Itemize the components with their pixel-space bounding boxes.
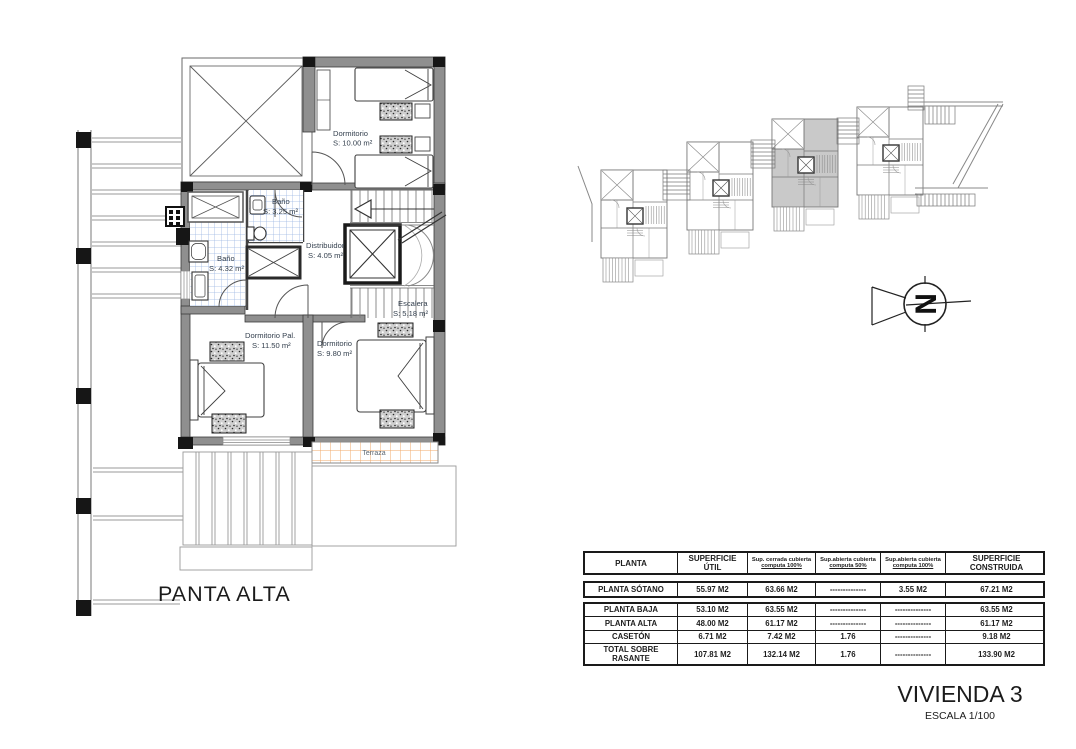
room-area-distribuidor: S: 4.05 m² [308, 251, 343, 260]
cell: -------------- [815, 583, 880, 596]
cell: 6.71 M2 [677, 631, 747, 644]
cell: -------------- [880, 617, 945, 630]
elevator [345, 225, 400, 283]
cell: 63.55 M2 [945, 604, 1047, 617]
sheet-scale: ESCALA 1/100 [880, 710, 1040, 722]
room-label-terraza: Terraza [362, 450, 385, 457]
room-area-dormitorio-pal: S: 11.50 m² [252, 341, 291, 350]
sheet-title: VIVIENDA 3 [880, 681, 1040, 708]
cell: 132.14 M2 [747, 644, 815, 664]
wardrobe-box [188, 192, 243, 222]
north-arrow-icon: N [872, 276, 971, 332]
room-area-dormitorio-br: S: 9.80 m² [317, 349, 352, 358]
cell: 9.18 M2 [945, 631, 1047, 644]
header-line2: computa 50% [829, 563, 866, 570]
cell: 107.81 M2 [677, 644, 747, 664]
pergola-left [78, 130, 183, 616]
lower-outlines [180, 452, 456, 570]
room-label-bano-large: Baño [217, 254, 235, 263]
cell: TOTAL SOBRE RASANTE [585, 644, 677, 664]
areas-table: PLANTA SUPERFICIE ÚTIL Sup. cerrada cubi… [583, 551, 1045, 666]
cell: 3.55 M2 [880, 583, 945, 596]
room-label-dormitorio-br: Dormitorio [317, 339, 352, 348]
electrical-box [166, 207, 184, 226]
header-planta: PLANTA [585, 553, 677, 573]
table-row: CASETÓN 6.71 M2 7.42 M2 1.76 -----------… [585, 630, 1043, 644]
room-area-bano-small: S: 3.25 m² [263, 207, 298, 216]
cell: -------------- [880, 644, 945, 664]
cell: 61.17 M2 [945, 617, 1047, 630]
drawing-sheet: Dormitorio S: 10.00 m² Baño S: 3.25 m² D… [0, 0, 1076, 749]
room-area-escalera: S: 5.18 m² [393, 309, 428, 318]
table-row: TOTAL SOBRE RASANTE 107.81 M2 132.14 M2 … [585, 643, 1043, 664]
cell: 1.76 [815, 644, 880, 664]
header-cerrada-cubierta: Sup. cerrada cubierta computa 100% [747, 553, 815, 573]
table-row: PLANTA ALTA 48.00 M2 61.17 M2 ----------… [585, 616, 1043, 630]
header-abierta-100: Sup.abierta cubierta computa 100% [880, 553, 945, 573]
cell: -------------- [880, 631, 945, 644]
cell: 48.00 M2 [677, 617, 747, 630]
cell: -------------- [880, 604, 945, 617]
table-sotano-block: PLANTA SÓTANO 55.97 M2 63.66 M2 --------… [583, 581, 1045, 598]
north-letter: N [909, 293, 942, 315]
bedroom-tr-furniture [317, 68, 433, 188]
site-unit-1 [601, 170, 667, 282]
bedroom-master-furniture [190, 342, 264, 433]
table-row: PLANTA SÓTANO 55.97 M2 63.66 M2 --------… [585, 583, 1043, 596]
header-superficie-construida: SUPERFICIE CONSTRUIDA [945, 553, 1047, 573]
cell: -------------- [815, 617, 880, 630]
floor-plan: Dormitorio S: 10.00 m² Baño S: 3.25 m² D… [76, 57, 456, 616]
cell: CASETÓN [585, 631, 677, 644]
bedroom-br-furniture [357, 323, 434, 428]
shaft-box [247, 247, 300, 278]
cell: 1.76 [815, 631, 880, 644]
floor-plan-title: PANTA ALTA [158, 582, 291, 607]
room-area-bano-large: S: 4.32 m² [209, 264, 244, 273]
cell: 53.10 M2 [677, 604, 747, 617]
cell: -------------- [815, 604, 880, 617]
cell: 133.90 M2 [945, 644, 1047, 664]
table-row: PLANTA BAJA 53.10 M2 63.55 M2 ----------… [585, 604, 1043, 617]
void-box [182, 58, 312, 182]
header-superficie-util: SUPERFICIE ÚTIL [677, 553, 747, 573]
site-plan: N [578, 86, 1003, 332]
room-label-dormitorio-tr: Dormitorio [333, 129, 368, 138]
room-label-bano-small: Baño [272, 197, 290, 206]
site-unit-4 [857, 107, 923, 219]
cell: PLANTA BAJA [585, 604, 677, 617]
header-abierta-50: Sup.abierta cubierta computa 50% [815, 553, 880, 573]
site-unit-2 [687, 142, 753, 254]
room-label-escalera: Escalera [398, 299, 428, 308]
cell: 63.55 M2 [747, 604, 815, 617]
cell: PLANTA SÓTANO [585, 583, 677, 596]
cell: 7.42 M2 [747, 631, 815, 644]
header-line2: computa 100% [761, 563, 802, 570]
cell: 61.17 M2 [747, 617, 815, 630]
room-label-dormitorio-pal: Dormitorio Pal. [245, 331, 295, 340]
cell: PLANTA ALTA [585, 617, 677, 630]
cell: 63.66 M2 [747, 583, 815, 596]
areas-table-header: PLANTA SUPERFICIE ÚTIL Sup. cerrada cubi… [583, 551, 1045, 575]
room-label-distribuidor: Distribuidor [306, 241, 345, 250]
header-line2: computa 100% [893, 563, 934, 570]
table-main-block: PLANTA BAJA 53.10 M2 63.55 M2 ----------… [583, 602, 1045, 667]
cell: 67.21 M2 [945, 583, 1047, 596]
cell: 55.97 M2 [677, 583, 747, 596]
room-area-dormitorio-tr: S: 10.00 m² [333, 139, 373, 148]
